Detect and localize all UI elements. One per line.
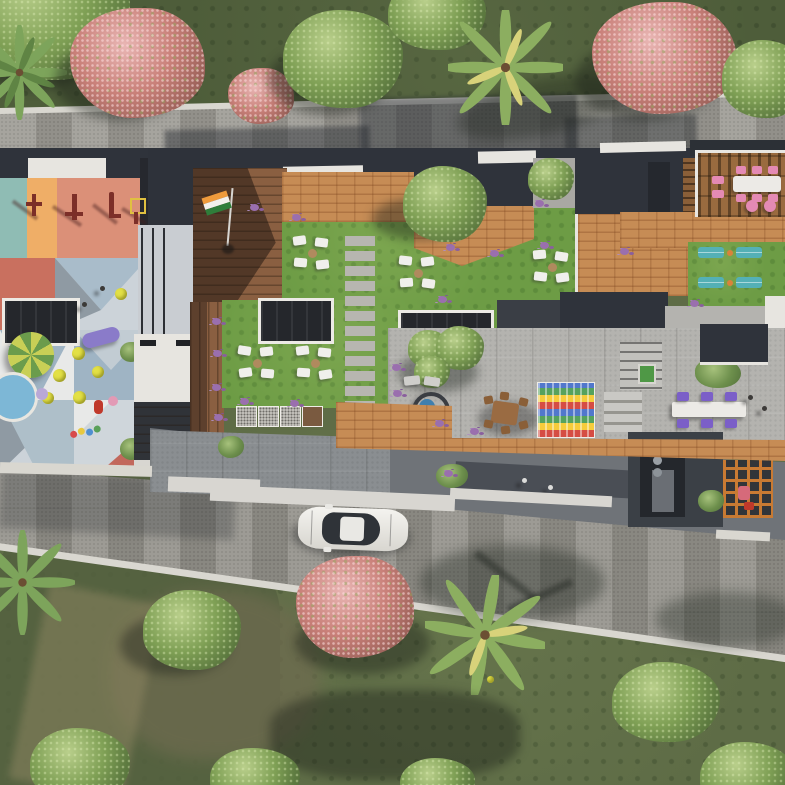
dining-chair-2 [500,392,510,401]
lounger-cluster-1 [293,236,333,272]
stepping-stone-path [345,236,375,428]
mid-roof-block-b [560,292,668,332]
dining-chair-5 [500,425,510,434]
play-ball-red [94,400,103,414]
flowers-7 [240,398,249,405]
mosaic-panel-2 [258,406,279,427]
person-playground-2 [82,302,87,307]
central-lawn-tree [403,166,487,242]
flowers-10 [490,250,499,257]
service-door [652,470,674,512]
purple-chair-6 [725,419,737,428]
flower-bed-terrace-1 [392,364,401,371]
flowers-12 [438,296,447,303]
trellis-play-item-pink [738,486,750,500]
play-ball-pink [108,396,118,406]
bottom-shadow-band [270,690,520,780]
person-terrace-1 [748,395,753,400]
trampoline-6 [115,288,127,300]
mosaic-panel-4 [302,406,323,427]
colourful-play-mat [537,382,595,438]
pink-lounge-1 [712,176,724,184]
lounger-cluster-2 [399,256,439,292]
pergola-table [733,176,781,192]
trampoline-3 [92,366,104,378]
purple-chair-1 [677,392,689,401]
flowers-8 [290,400,299,407]
bottom-tree-2 [612,662,720,742]
mosaic-panel-1 [236,406,257,427]
flowers-11 [540,242,549,249]
flowers-5 [212,384,221,391]
flowers-4 [213,350,222,357]
exercise-ball-2 [727,280,733,286]
parapet-fragment-3 [600,141,686,153]
purple-chair-3 [725,392,737,401]
garden-pocket-tree [528,158,574,200]
gym-machine-2 [58,192,92,236]
tree-top-right [722,40,785,118]
exercise-ball-1 [727,250,733,256]
pink-chair-4 [736,194,746,202]
play-ball-lavender [36,388,48,400]
person-walkway-1 [522,478,527,483]
car-roof [340,517,365,542]
lawn-skylight-1 [258,298,334,344]
palm-tree-bottom-center [425,575,545,695]
flowers-1 [250,204,259,211]
white-hut [765,296,785,332]
pink-lounge-2 [712,190,724,198]
dining-table [491,400,520,425]
communal-table [672,402,746,417]
yoga-mat-4 [736,277,762,288]
flowering-tree-bottom [296,556,414,658]
flowers-16 [435,420,444,427]
person-playground-1 [100,286,105,291]
lavender-bush-flowers [444,470,453,477]
trampoline-2 [53,369,66,382]
flowers-17 [470,428,479,435]
palm-tree-bottom-left [0,530,75,635]
pink-round-chair-1 [746,200,758,212]
yellow-marker [487,676,494,683]
trampoline-1 [72,347,85,360]
mosaic-panel-3 [280,406,301,427]
yoga-mat-3 [698,277,724,288]
lounger-cluster-4 [238,346,278,382]
flowers-15 [690,300,699,307]
flowers-13 [535,200,544,207]
car-mirror-left [325,504,333,509]
roof-vent-1 [140,340,156,346]
flag-pole-base-shadow [222,244,234,254]
palm-tree-top-center [448,10,563,125]
flowers-14 [620,248,629,255]
white-sedan-car [297,502,411,560]
aerial-rooftop-render [0,0,785,785]
purple-chair-2 [701,392,713,401]
terrace-dark-roof [700,324,768,365]
dining-chair-4 [483,419,493,429]
terrace-steps [604,392,642,432]
yoga-mat-1 [698,247,724,258]
flowers-2 [292,214,301,221]
pink-chair-1 [736,166,746,174]
flowers-3 [212,318,221,325]
purple-chair-4 [677,419,689,428]
pink-round-chair-2 [764,200,776,212]
grey-lounger-pair [404,376,448,392]
flowering-tree-3 [592,2,737,114]
pink-chair-2 [752,166,762,174]
flowers-6 [214,414,223,421]
person-walkway-2 [548,485,553,490]
deck-walkway-shadow [190,302,207,434]
stair-railing [141,228,173,334]
lounger-cluster-3 [533,250,573,286]
lounger-cluster-5 [296,346,336,382]
flowers-9 [446,244,455,251]
planter-box [638,364,656,384]
trellis-play-item-red [744,502,754,510]
pink-chair-3 [768,166,778,174]
gym-parapet [28,158,106,178]
trampoline-4 [73,391,86,404]
flowering-tree-1 [70,8,205,118]
bottom-tree-1 [143,590,241,670]
dining-chair-1 [483,395,493,404]
person-terrace-2 [762,406,767,411]
tree-top-mid [283,10,403,108]
yoga-mat-2 [736,247,762,258]
purple-chair-5 [701,419,713,428]
flower-bed-terrace-2 [393,390,402,397]
parapet-fragment-2 [478,150,536,163]
car-mirror-right [323,547,331,552]
gym-machine-1 [18,188,52,232]
